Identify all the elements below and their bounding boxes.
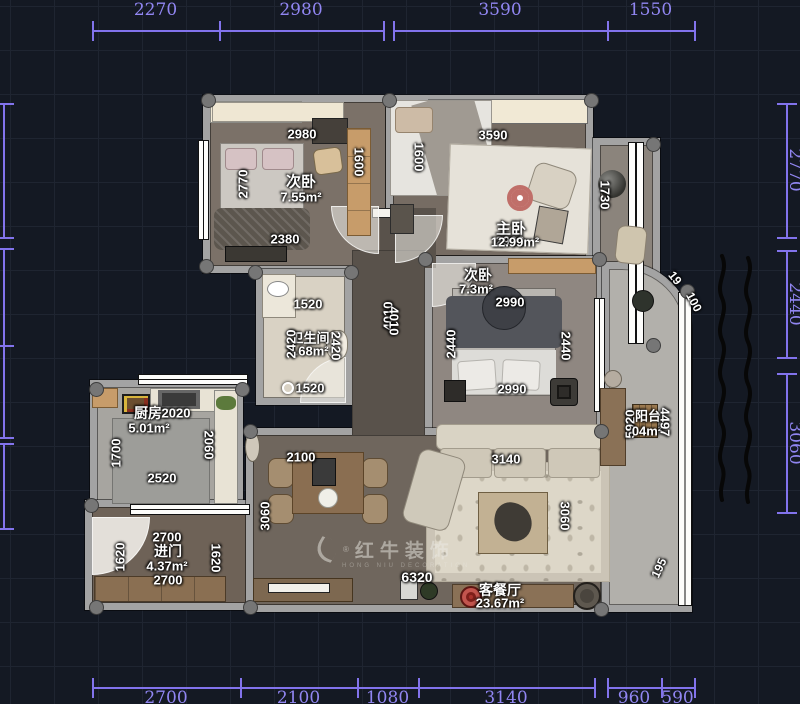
column-marker [646,137,661,152]
column-marker [243,424,258,439]
pillow [225,148,257,170]
plan-label: 7.3m² [459,282,493,297]
column-marker [84,498,99,513]
nightstand [444,380,466,402]
plan-label: 次卧 [286,171,316,192]
plan-label: 2990 [496,295,525,310]
dimension-value: 2100 [277,688,320,704]
plan-label: 1620 [209,544,224,573]
plan-label: 3140 [492,452,521,467]
plan-label: 3060 [258,502,273,531]
tv-cabinet [225,246,287,262]
serving-tray [312,458,336,486]
plan-label: 2700 [154,573,183,588]
dimension-tick [0,437,14,439]
plan-label: 2770 [236,170,251,199]
plan-label: 1700 [109,439,124,468]
plan-label: 12.99m² [491,235,539,250]
plan-label: 7.55m² [280,190,321,205]
column-marker [646,338,661,353]
dimension-tick [607,21,609,41]
dimension-tick [418,678,420,698]
sideboard-inset [268,583,330,593]
dimension-tick [777,103,797,105]
plan-label: 1600 [412,143,427,172]
watermark-brand-text: 红牛装饰 [355,536,455,563]
plan-label: 5.01m² [128,421,169,436]
plan-label: 1730 [598,181,613,210]
dimension-tick [0,248,14,250]
vegetables [216,396,236,410]
column-marker [201,93,216,108]
dimension-line [3,443,5,528]
plan-label: 2020 [162,406,191,421]
dimension-tick [0,345,14,347]
window-kitchen [138,374,248,385]
column-marker [89,600,104,615]
dimension-tick [777,357,797,359]
dimension-line [92,30,383,32]
dimension-tick [694,21,696,41]
dimension-tick [393,21,395,41]
desk-chair [312,146,343,176]
dimension-value: 3590 [478,0,521,20]
plan-label: 2380 [271,232,300,247]
plan-label: 4.37m² [146,559,187,574]
bull-logo-icon [311,536,343,563]
column-marker [89,382,104,397]
plan-label: 23.67m² [476,596,524,611]
dimension-value: 2270 [134,0,177,20]
column-marker [344,265,359,280]
plan-label: 3590 [479,128,508,143]
column-marker [594,602,609,617]
dimension-line [393,30,694,32]
plan-label: 3060 [558,502,573,531]
dimension-tick [594,678,596,698]
plan-label: 1600 [352,148,367,177]
cad-drawing-canvas[interactable]: ® 红牛装饰 HONG NIU DECORATION 次卧7.55m²29802… [0,0,800,704]
plan-label: 2990 [498,382,527,397]
nightstand [390,204,414,234]
lounge-chair [614,225,648,266]
wardrobe-wood [508,258,596,274]
dimension-value: 2770 [785,148,800,191]
dimension-value: 2980 [279,0,322,20]
dimension-tick [0,443,14,445]
balcony-plant [632,290,654,312]
dimension-tick [0,103,14,105]
dimension-value: 1080 [366,688,409,704]
corridor-floor [352,250,425,436]
sofa-back [436,424,602,450]
dimension-tick [694,678,696,698]
plan-label: 6320 [401,569,432,585]
revision-squiggle-marks [702,248,772,508]
plan-label: 1520 [294,297,323,312]
floor-drain-symbol [282,382,294,394]
dimension-value: 960 [618,688,650,704]
dimension-value: 2440 [785,282,800,325]
column-marker [592,252,607,267]
dimension-tick [0,237,14,239]
dimension-tick [607,678,609,698]
plan-label: 2420 [284,330,299,359]
column-marker [584,93,599,108]
plan-label: 2440 [444,330,459,359]
pillow [395,107,433,133]
wardrobe-wood [347,128,371,236]
dimension-tick [777,250,797,252]
watermark-logo: ® 红牛装饰 HONG NIU DECORATION [316,536,470,569]
plan-label: 2440 [559,332,574,361]
dimension-tick [777,237,797,239]
dimension-tick [383,21,385,41]
column-marker [382,93,397,108]
pillow [262,148,294,170]
plan-label: 1620 [113,543,128,572]
desk [312,118,348,144]
column-marker [594,424,609,439]
dimension-tick [0,528,14,530]
dimension-value: 3140 [484,688,527,704]
table-bowl [318,488,338,508]
balcony-chair [604,370,622,388]
column-marker [243,600,258,615]
window-right-balcony [678,292,692,606]
dimension-value: 1550 [629,0,672,20]
sink-basin [267,281,289,297]
plan-label: 4497 [658,408,673,437]
dimension-line [3,345,5,437]
nightstand-speaker [550,378,578,406]
plan-label: 1520 [296,381,325,396]
dining-chair [362,458,388,488]
column-marker [235,382,250,397]
dimension-line [3,248,5,345]
dimension-tick [240,678,242,698]
plan-label: 4010 [387,307,402,336]
dimension-value: 3060 [785,421,800,464]
dimension-line [3,103,5,237]
column-marker [418,252,433,267]
sofa-cushion [548,448,600,478]
red-round-cushion [507,185,533,211]
column-marker [248,265,263,280]
sliding-door-kitchen-entry [130,504,250,515]
dimension-tick [92,678,94,698]
dimension-tick [777,373,797,375]
plan-label: 2980 [288,127,317,142]
dimension-tick [357,678,359,698]
window-bedroom1-left [198,140,209,240]
dimension-value: 2700 [144,688,187,704]
dimension-tick [219,21,221,41]
plan-label: 2100 [287,450,316,465]
plan-label: 2520 [148,471,177,486]
column-marker [199,259,214,274]
registered-mark: ® [343,545,349,554]
dimension-tick [92,21,94,41]
plan-label: 2060 [202,431,217,460]
dimension-tick [777,512,797,514]
dining-chair [362,494,388,524]
plan-label: 2420 [329,332,344,361]
dimension-value: 590 [661,688,693,704]
